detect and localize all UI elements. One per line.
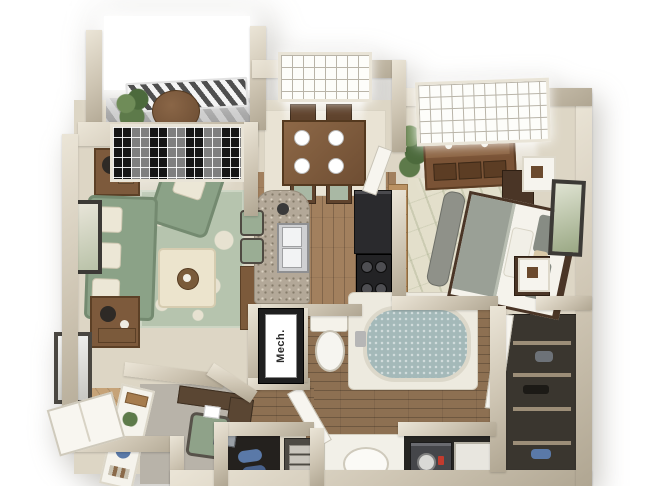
door-panel-split [78, 403, 91, 442]
closet-shelf-icon [513, 341, 571, 345]
wall-shelf-icon [98, 328, 136, 343]
toilet-bowl-icon [315, 330, 345, 372]
place-setting-icon [294, 130, 310, 146]
bedroom-closet-wall [536, 296, 592, 310]
chair-cushion-icon [330, 186, 348, 200]
mech-closet: Mech. [258, 308, 304, 384]
dresser-drawer-icon [433, 163, 457, 181]
ottoman-icon [158, 248, 216, 308]
tub-faucet-icon [355, 331, 366, 347]
refrigerator-icon [354, 190, 392, 254]
bedroom-window-icon [415, 78, 551, 147]
bedroom-left-wall-upper [392, 60, 406, 152]
living-dining-wall [244, 122, 258, 216]
shelf-plant-icon [120, 410, 141, 428]
cube-shelf-inner [531, 166, 543, 178]
burner-icon [375, 261, 387, 273]
stored-item-icon [531, 449, 551, 459]
bedroom-left-wall-lower [392, 190, 406, 300]
sink-basin-icon [282, 227, 302, 247]
drawer-icon [289, 445, 311, 454]
closet-divider-wall [490, 306, 506, 472]
place-setting-icon [328, 130, 344, 146]
vanity-left-wall [310, 428, 324, 486]
double-sink-icon [277, 223, 309, 273]
washer-button-icon [438, 456, 444, 465]
dresser-drawer-icon [458, 161, 482, 179]
dining-table-icon [282, 120, 366, 186]
picture-frame-icon [548, 179, 586, 257]
mech-closet-label-text: Mech. [275, 329, 287, 363]
burner-icon [361, 261, 373, 273]
apartment-floorplan: Mech. [0, 0, 650, 486]
closet-shelf-icon [513, 441, 571, 445]
laundry-top-wall [398, 422, 496, 436]
place-setting-icon [328, 158, 344, 174]
papers-icon [203, 405, 221, 419]
cube-shelf-inner [527, 267, 538, 278]
floorplan-screenshot: Mech. [0, 0, 650, 486]
stored-item-icon [535, 351, 553, 362]
lamp-icon [100, 306, 116, 322]
place-setting-icon [294, 158, 310, 174]
shoe-closet-left-wall [214, 422, 228, 486]
bar-stool-icon [240, 238, 264, 264]
balcony-right-wall [250, 26, 266, 130]
bedroom-bath-wall [392, 296, 498, 310]
kitchen-faucet-icon [277, 203, 289, 215]
dining-window-icon [278, 52, 372, 102]
sink-basin-icon [282, 248, 302, 268]
drawer-icon [289, 455, 311, 464]
tub-basin-icon [363, 306, 471, 382]
mech-closet-label: Mech. [265, 314, 297, 378]
closet-shelf-icon [513, 407, 571, 411]
tray-bowl-icon [183, 274, 191, 282]
balcony-left-wall [86, 30, 102, 130]
cube-shelf-icon [518, 258, 550, 292]
shelf-books-icon [125, 392, 149, 408]
stored-item-icon [523, 385, 549, 394]
living-window-icon [110, 124, 244, 182]
right-outer-wall [576, 92, 592, 486]
shoe-closet-top-wall [214, 422, 314, 436]
bottom-outer-wall [170, 470, 592, 486]
shoe-icon [237, 448, 262, 463]
shelf-books-icon [108, 465, 130, 479]
closet-shelf-icon [513, 373, 571, 377]
walk-in-closet [504, 314, 580, 474]
